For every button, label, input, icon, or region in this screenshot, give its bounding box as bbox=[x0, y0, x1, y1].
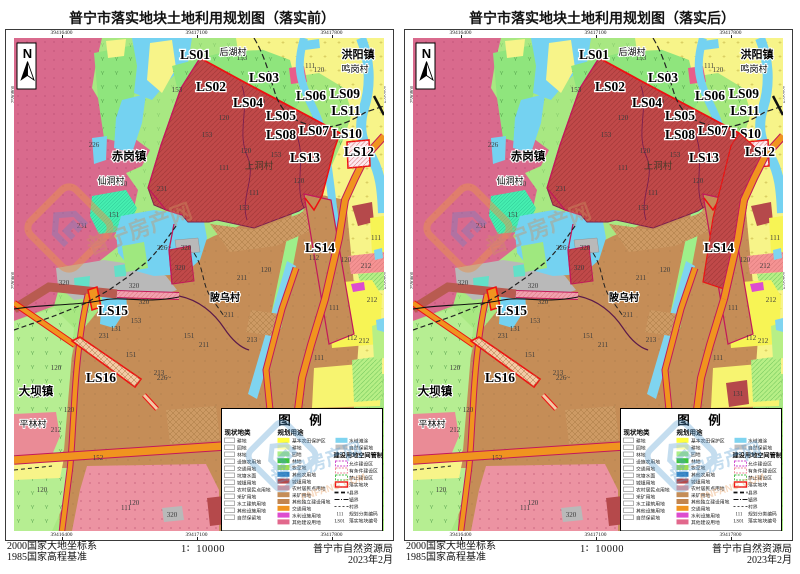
svg-text:LS14: LS14 bbox=[704, 240, 734, 255]
svg-text:LS12: LS12 bbox=[745, 144, 775, 159]
svg-text:131: 131 bbox=[733, 390, 744, 398]
